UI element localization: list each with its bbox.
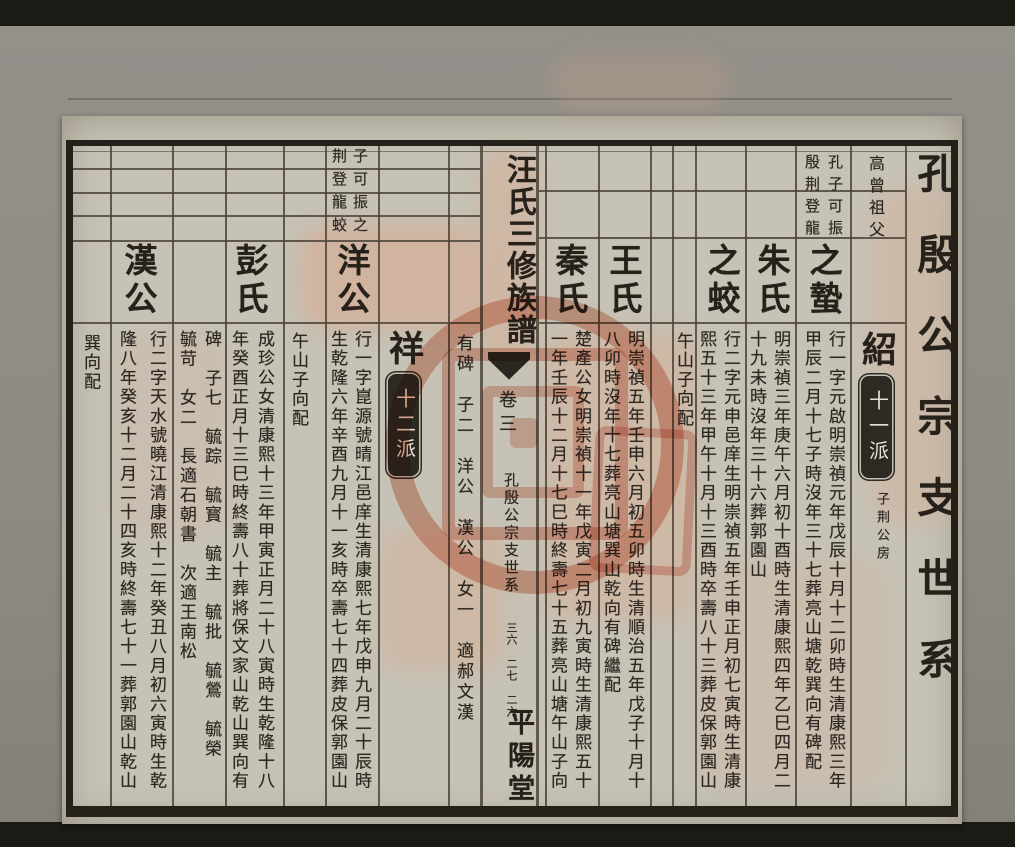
- biography-column: 行一字元啟明崇禎元年戊辰十月十二卯時生清康熙三年: [827, 330, 844, 791]
- paper-stain: [552, 55, 727, 110]
- header-rule: [73, 240, 480, 242]
- children-list: 毓苛 女二 長適石朝書 次適王南松: [178, 330, 195, 662]
- biography-column: 成珍公女清康熙十三年甲寅正月二十八寅時生乾隆十八: [256, 330, 273, 791]
- ancestor-names-second: 殷荆登龍: [803, 154, 818, 242]
- burial-direction-note: 巽向配: [82, 334, 99, 392]
- burial-direction-note: 午山子向配: [290, 332, 307, 428]
- column-rule: [325, 146, 327, 806]
- red-seal-fragment: [588, 425, 698, 576]
- header-rule: [73, 192, 480, 194]
- header-rule: [73, 168, 480, 170]
- ancestor-names-first: 孔子可振: [826, 154, 841, 242]
- biography-column: 隆八年癸亥十二月二十四亥時終壽七十一葬郭園山乾山: [118, 330, 135, 791]
- margin-section-title: 孔殷公宗支世系: [908, 152, 954, 719]
- adjacent-page-edge: [68, 98, 952, 100]
- biography-column: 甲辰二月十七子時沒年三十七葬亮山塘乾巽向有碑配: [803, 330, 820, 772]
- generation-badge-label: 十一派: [867, 390, 887, 465]
- column-rule: [172, 146, 174, 806]
- ancestor-row-labels: 高曾祖父: [866, 155, 882, 243]
- frame-left: [66, 140, 73, 817]
- column-rule: [225, 146, 227, 806]
- column-rule: [283, 146, 285, 806]
- frame-top: [66, 140, 958, 146]
- ancestor-names-first: 子可振之: [351, 148, 366, 240]
- person-name: 之蟄: [805, 243, 838, 319]
- seal-center-mark: [510, 418, 538, 448]
- biography-column: 年癸酉正月十三巳時終壽八十葬將保文家山乾山巽向有: [230, 330, 247, 791]
- header-rule: [73, 215, 480, 217]
- biography-column: 行二字元申邑庠生明崇禎五年壬申正月初七寅時生清康: [722, 330, 739, 791]
- biography-column: 明崇禎三年庚午六月初十酉時生清康熙四年乙巳四月二: [772, 330, 789, 791]
- header-rule: [539, 237, 905, 239]
- person-name: 漢公: [120, 243, 153, 319]
- column-rule: [905, 146, 907, 806]
- column-rule: [110, 146, 112, 806]
- biography-column: 行二字天水號曉江清康熙十二年癸丑八月初六寅時生乾: [148, 330, 165, 791]
- column-rule: [850, 146, 852, 806]
- generation-badge: 十一派: [861, 376, 892, 478]
- person-name: 洋公: [333, 243, 366, 319]
- biography-column: 行一字崑源號晴江邑庠生清康熙七年戊申九月二十辰時: [353, 330, 370, 791]
- spouse-name: 朱氏: [753, 243, 786, 319]
- rule-inner-top: [73, 151, 951, 152]
- person-name: 之蛟: [703, 243, 736, 319]
- spouse-name: 彭氏: [231, 243, 264, 319]
- genealogy-page-scan: 孔殷公宗支世系 高曾祖父 孔子可振 殷荆登龍 紹 十一派 子荆公房 之蟄 行一字…: [0, 0, 1015, 847]
- ancestor-names-second: 荆登龍蛟: [330, 148, 345, 240]
- branch-note: 子荆公房: [876, 492, 889, 564]
- header-rule: [539, 190, 905, 192]
- leaf-numbers: 三六 二七 二六: [505, 622, 516, 718]
- biography-column: 熙五十三年甲午十月十三酉時卒壽八十三葬皮保郭園山: [698, 330, 715, 791]
- hall-name: 平陽堂: [488, 708, 532, 807]
- column-rule: [795, 146, 797, 806]
- biography-column: 十九未時沒年三十六葬郭園山: [748, 330, 765, 580]
- children-list: 碑 子七 毓踪 毓寳 毓主 毓批 毓鶯 毓榮: [203, 330, 220, 759]
- generation-char: 紹: [859, 331, 894, 366]
- frame-bottom: [66, 806, 958, 817]
- biography-column: 生乾隆六年辛酉九月十一亥時卒壽七十四葬皮保郭園山: [329, 330, 346, 791]
